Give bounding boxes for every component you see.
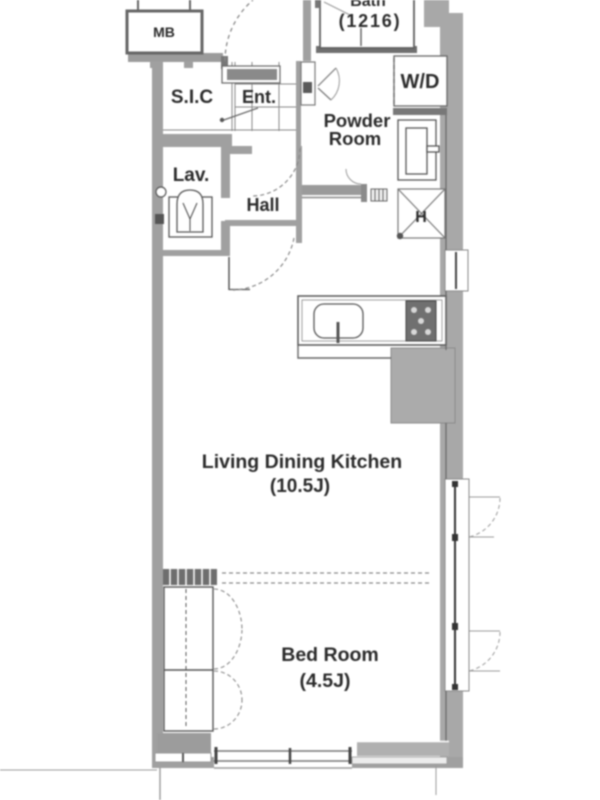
svg-text:Bed Room: Bed Room [281, 644, 379, 666]
svg-text:(10.5J): (10.5J) [270, 476, 330, 497]
svg-text:MB: MB [153, 24, 175, 40]
svg-text:(4.5J): (4.5J) [300, 670, 351, 692]
svg-text:Living Dining Kitchen: Living Dining Kitchen [202, 451, 402, 473]
svg-text:H: H [415, 209, 427, 226]
svg-text:Hall: Hall [246, 195, 279, 215]
svg-text:Room: Room [329, 128, 381, 149]
svg-text:S.I.C: S.I.C [171, 87, 214, 108]
svg-text:Bath: Bath [350, 0, 386, 10]
svg-text:W/D: W/D [401, 71, 440, 93]
svg-text:(1216): (1216) [339, 11, 402, 31]
svg-text:Ent.: Ent. [242, 87, 276, 107]
svg-text:Lav.: Lav. [173, 165, 210, 186]
